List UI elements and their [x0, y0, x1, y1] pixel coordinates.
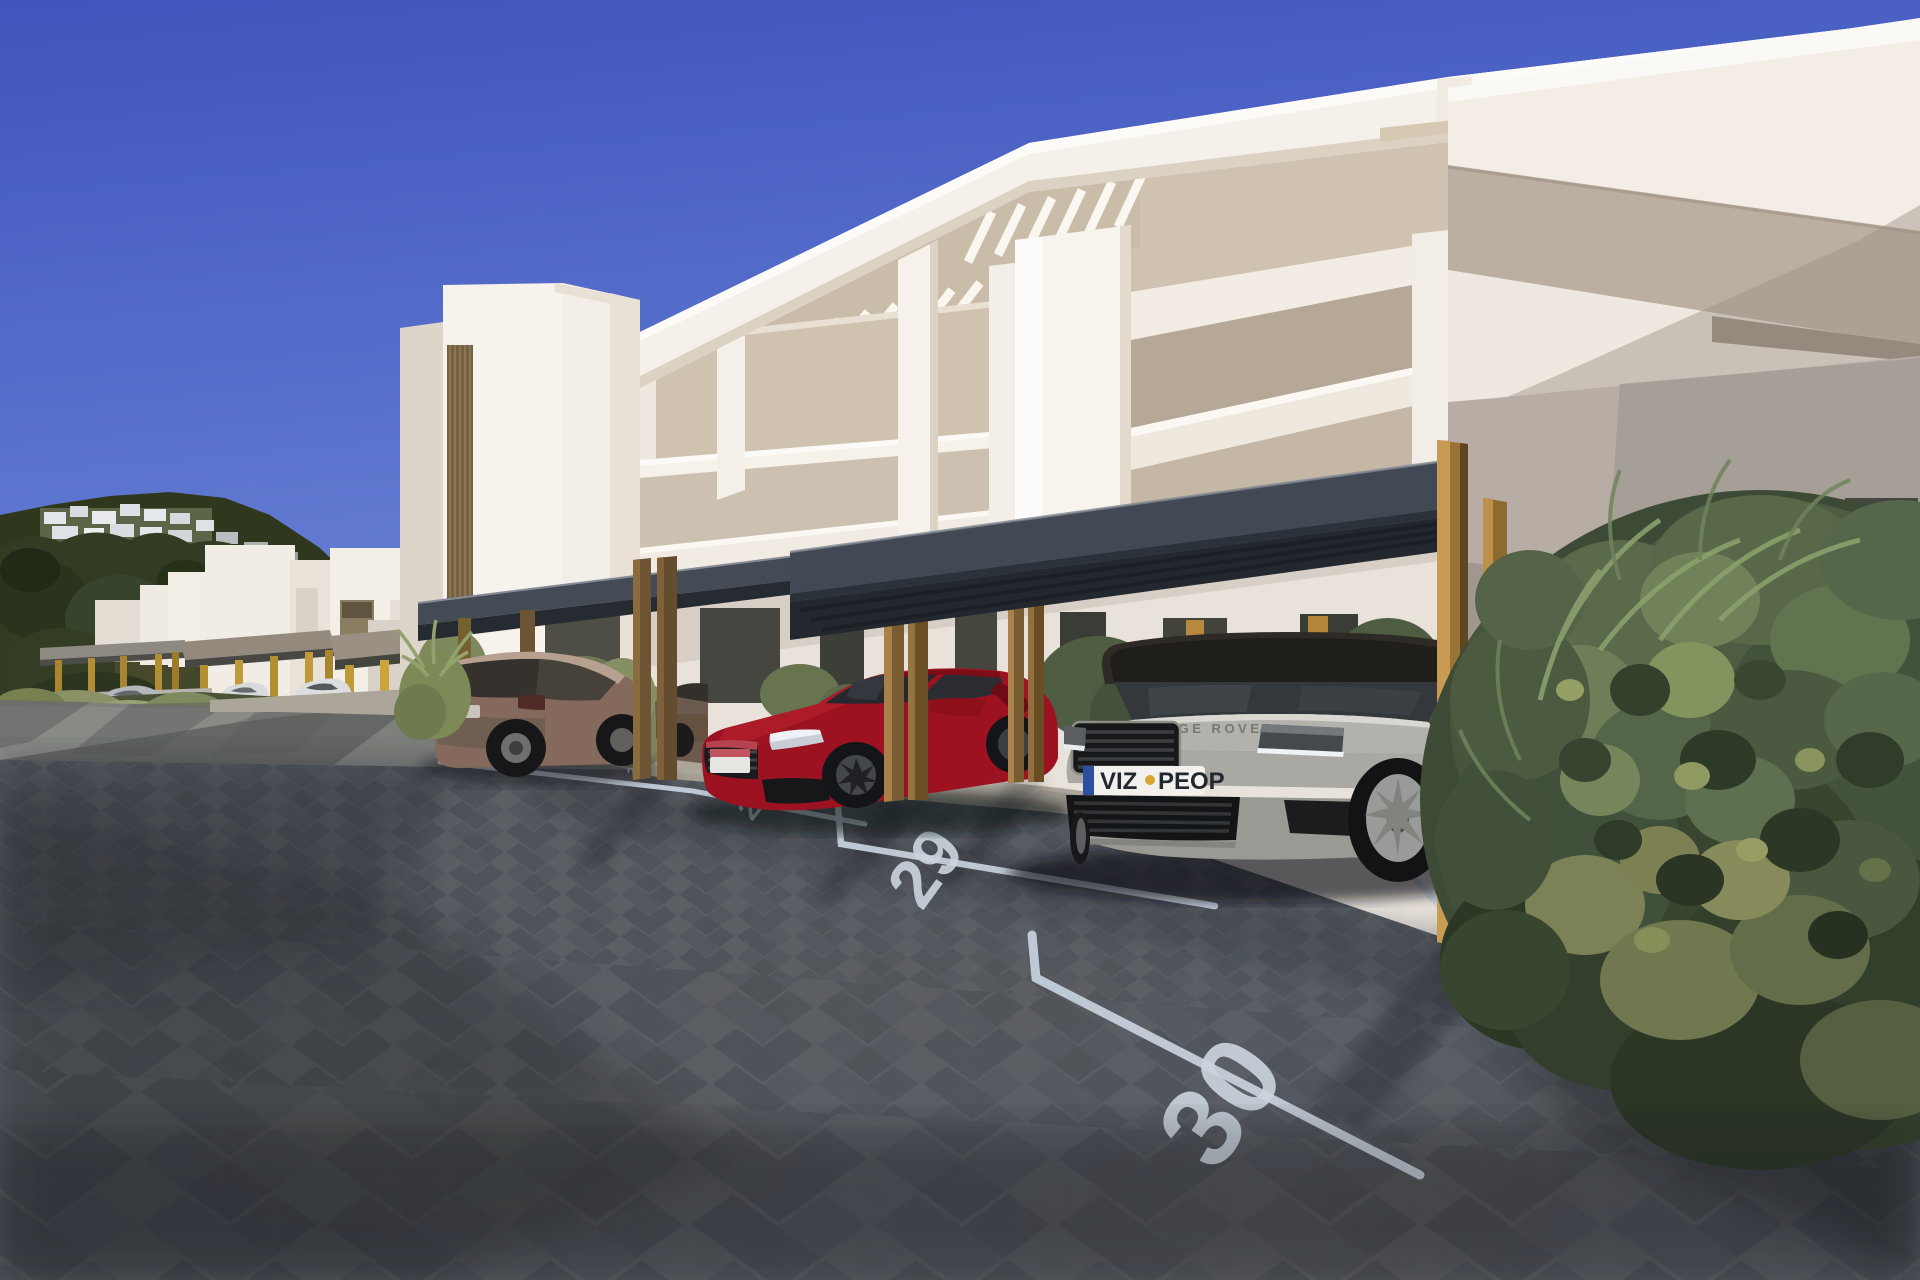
- svg-text:PEOP: PEOP: [1158, 768, 1225, 795]
- svg-text:VIZ: VIZ: [1100, 768, 1137, 795]
